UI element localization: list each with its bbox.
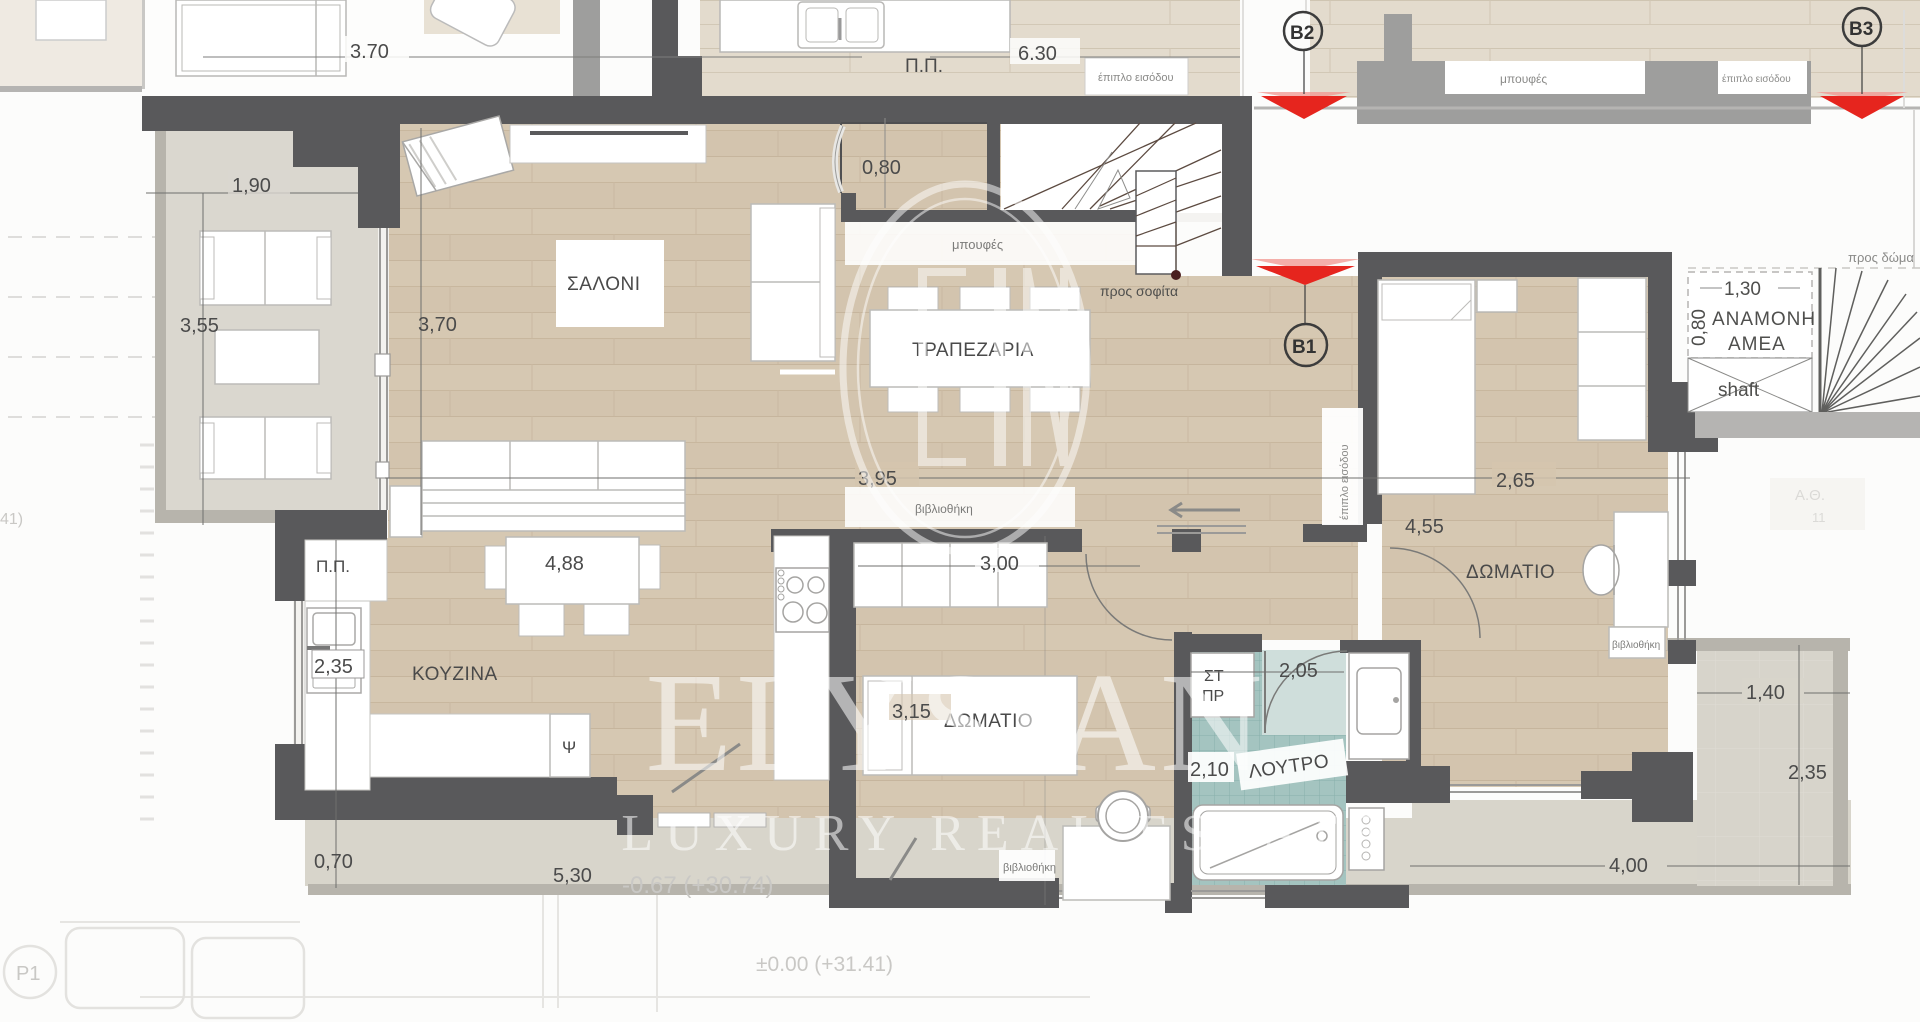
svg-text:προς δώμα: προς δώμα bbox=[1848, 250, 1914, 265]
svg-text:4,55: 4,55 bbox=[1405, 516, 1444, 538]
svg-text:ELYSIAN: ELYSIAN bbox=[645, 643, 1266, 801]
svg-text:3,55: 3,55 bbox=[180, 315, 219, 337]
svg-text:shaft: shaft bbox=[1718, 380, 1760, 401]
svg-text:έπιπλο εισόδου: έπιπλο εισόδου bbox=[1098, 72, 1174, 84]
svg-text:0,80: 0,80 bbox=[1689, 309, 1710, 346]
svg-text:βιβλιοθήκη: βιβλιοθήκη bbox=[1003, 862, 1056, 874]
svg-text:3.70: 3.70 bbox=[350, 41, 389, 63]
svg-text:μπουφές: μπουφές bbox=[952, 237, 1003, 252]
svg-text:ΤΡΑΠΕΖΑΡΙΑ: ΤΡΑΠΕΖΑΡΙΑ bbox=[912, 340, 1034, 361]
svg-text:3,00: 3,00 bbox=[980, 553, 1019, 575]
svg-text:2,35: 2,35 bbox=[314, 656, 353, 678]
svg-text:±0.00 (+31.41): ±0.00 (+31.41) bbox=[756, 953, 893, 976]
svg-text:μπουφές: μπουφές bbox=[1500, 72, 1547, 86]
svg-text:LUXURY REAL ESTATE: LUXURY REAL ESTATE bbox=[621, 805, 1392, 862]
svg-text:4,88: 4,88 bbox=[545, 553, 584, 575]
svg-text:ΣΑΛΟΝΙ: ΣΑΛΟΝΙ bbox=[567, 274, 641, 295]
svg-text:1,90: 1,90 bbox=[232, 175, 271, 197]
svg-text:41): 41) bbox=[0, 511, 23, 528]
svg-text:έπιπλο εισόδου: έπιπλο εισόδου bbox=[1722, 73, 1791, 85]
svg-text:11: 11 bbox=[1812, 510, 1826, 525]
svg-text:P1: P1 bbox=[16, 963, 40, 985]
svg-text:B1: B1 bbox=[1292, 337, 1317, 358]
svg-text:2,65: 2,65 bbox=[1496, 470, 1535, 492]
svg-text:ΚΟΥΖΙΝΑ: ΚΟΥΖΙΝΑ bbox=[412, 664, 498, 685]
svg-text:5,30: 5,30 bbox=[553, 865, 592, 887]
svg-text:Ψ: Ψ bbox=[562, 738, 576, 757]
svg-text:0,80: 0,80 bbox=[862, 157, 901, 179]
svg-text:2,05: 2,05 bbox=[1279, 660, 1318, 682]
svg-text:βιβλιοθήκη: βιβλιοθήκη bbox=[1612, 639, 1660, 651]
svg-text:ΑΝΑΜΟΝΗ: ΑΝΑΜΟΝΗ bbox=[1712, 309, 1816, 330]
svg-text:ΑΜΕΑ: ΑΜΕΑ bbox=[1728, 334, 1786, 355]
svg-text:1,40: 1,40 bbox=[1746, 682, 1785, 704]
svg-text:0,70: 0,70 bbox=[314, 851, 353, 873]
svg-text:Π.Π.: Π.Π. bbox=[316, 557, 350, 576]
svg-text:έπιπλο εισόδου: έπιπλο εισόδου bbox=[1339, 444, 1351, 520]
svg-text:-0.67 (+30.74): -0.67 (+30.74) bbox=[622, 872, 773, 899]
svg-text:2,35: 2,35 bbox=[1788, 762, 1827, 784]
svg-text:3,70: 3,70 bbox=[418, 314, 457, 336]
svg-text:βιβλιοθήκη: βιβλιοθήκη bbox=[915, 502, 973, 516]
svg-text:B3: B3 bbox=[1849, 19, 1873, 40]
svg-text:Α.Θ.: Α.Θ. bbox=[1795, 487, 1825, 504]
svg-text:6.30: 6.30 bbox=[1018, 43, 1057, 65]
svg-text:ΔΩΜΑΤΙΟ: ΔΩΜΑΤΙΟ bbox=[1466, 562, 1555, 583]
svg-text:προς σοφίτα: προς σοφίτα bbox=[1100, 283, 1178, 299]
svg-text:Π.Π.: Π.Π. bbox=[905, 56, 943, 77]
svg-text:4,00: 4,00 bbox=[1609, 855, 1648, 877]
svg-text:B2: B2 bbox=[1290, 23, 1314, 44]
svg-text:1,30: 1,30 bbox=[1724, 279, 1761, 300]
